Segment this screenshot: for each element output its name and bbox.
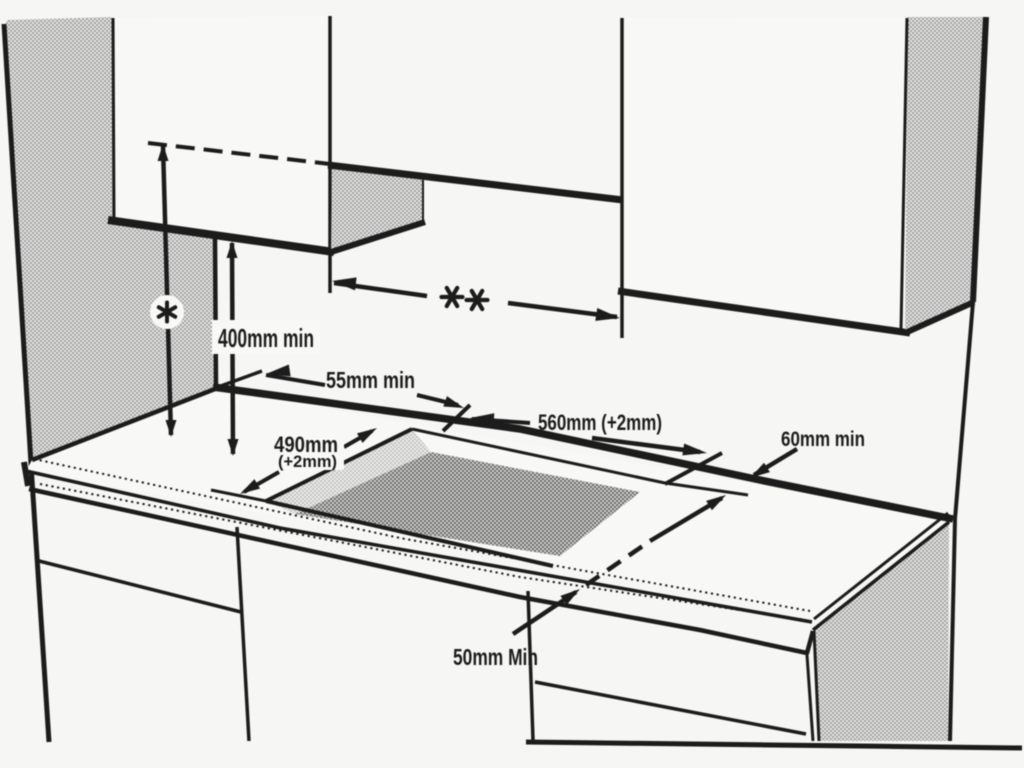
svg-text:60mm min: 60mm min	[781, 428, 865, 451]
svg-text:400mm min: 400mm min	[218, 323, 314, 353]
svg-text:(+2mm): (+2mm)	[278, 453, 337, 471]
svg-text:55mm min: 55mm min	[326, 367, 415, 393]
svg-text:50mm Min: 50mm Min	[453, 644, 538, 670]
svg-text:560mm (+2mm): 560mm (+2mm)	[538, 410, 662, 435]
